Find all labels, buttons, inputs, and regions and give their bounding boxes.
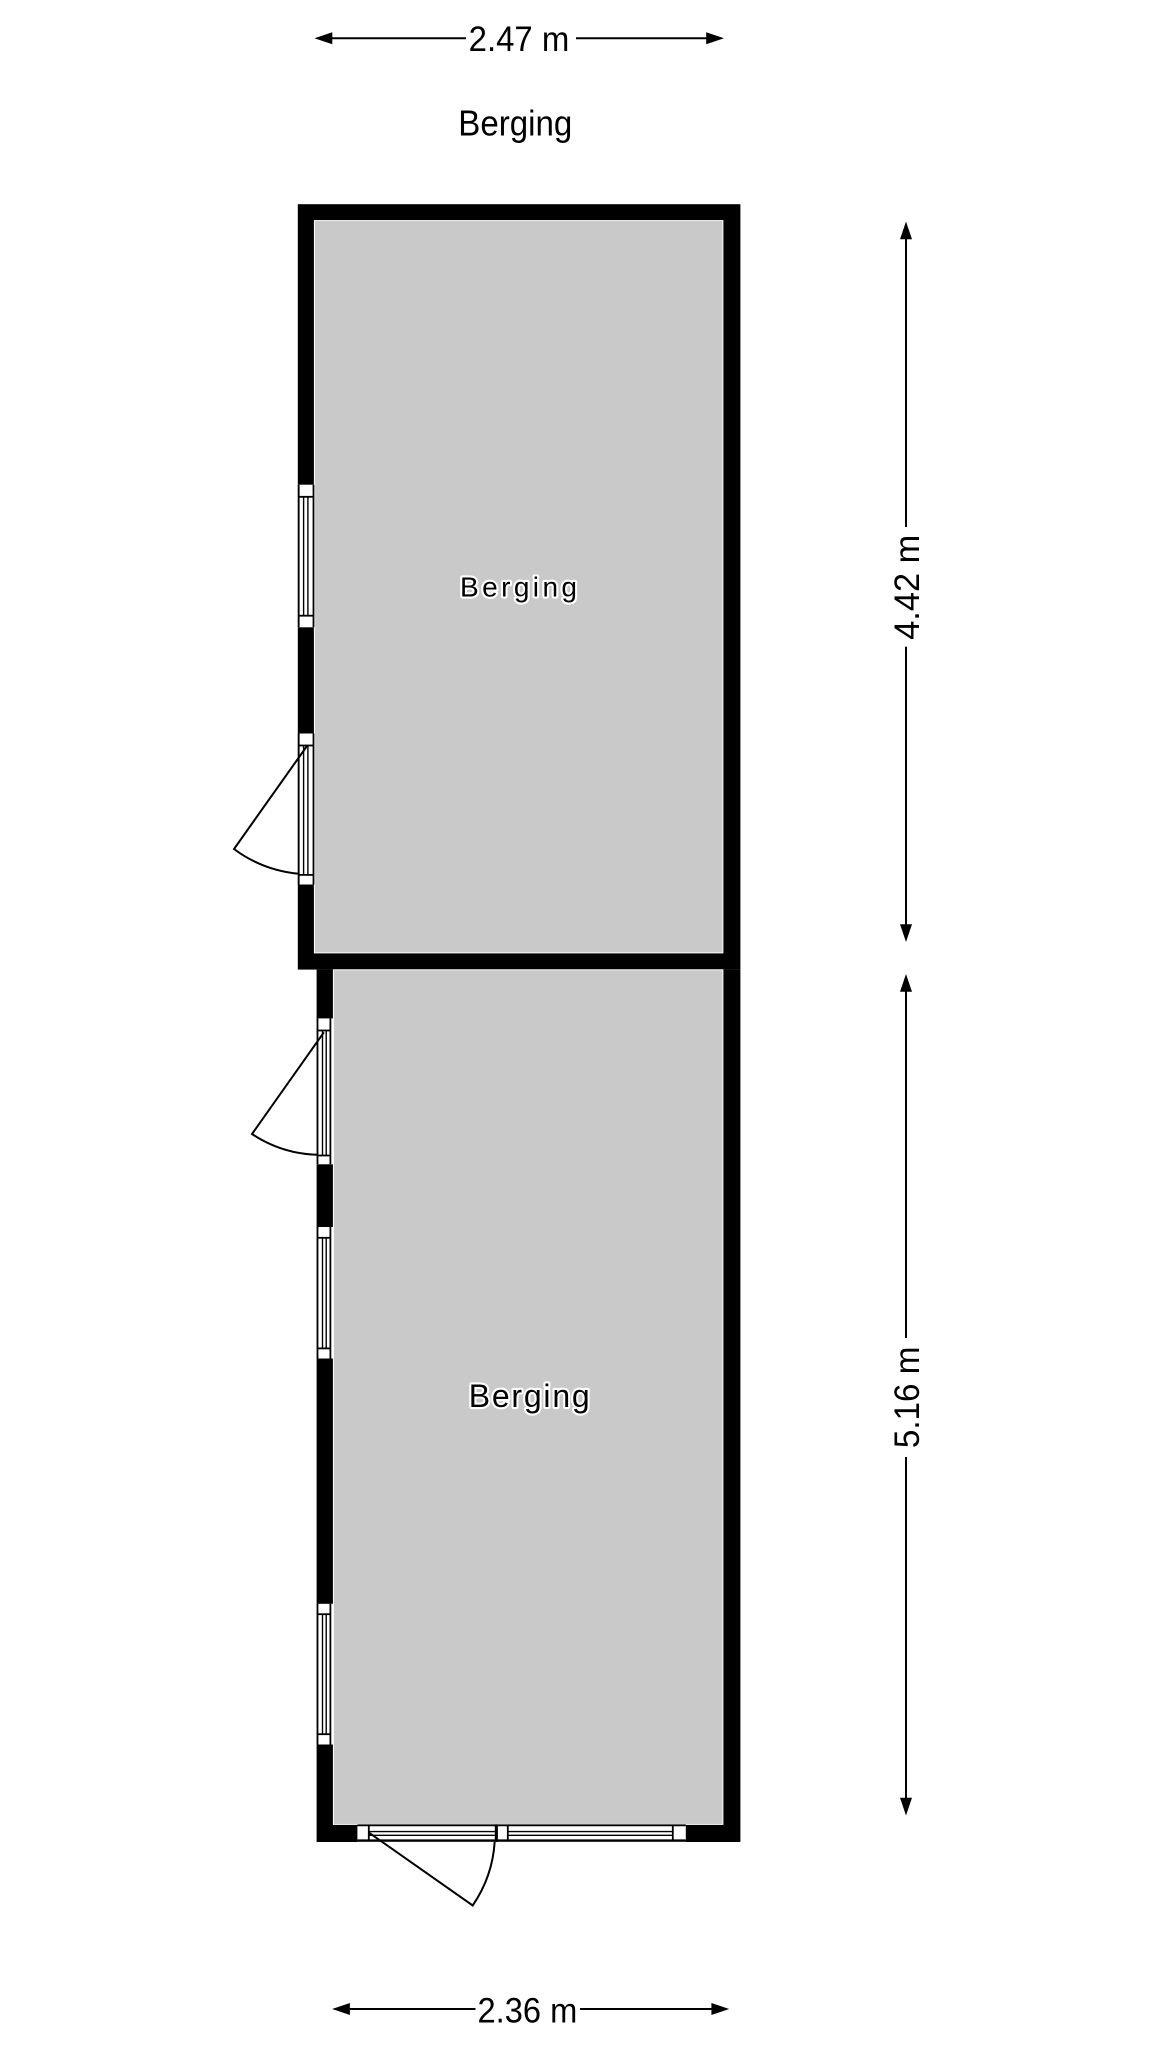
svg-text:2.47 m: 2.47 m	[469, 20, 570, 59]
svg-text:4.42 m: 4.42 m	[888, 535, 927, 640]
svg-text:2.36 m: 2.36 m	[478, 1992, 578, 2031]
svg-text:Berging: Berging	[469, 1378, 590, 1414]
svg-text:5.16 m: 5.16 m	[888, 1347, 927, 1449]
svg-text:Berging: Berging	[458, 103, 572, 144]
